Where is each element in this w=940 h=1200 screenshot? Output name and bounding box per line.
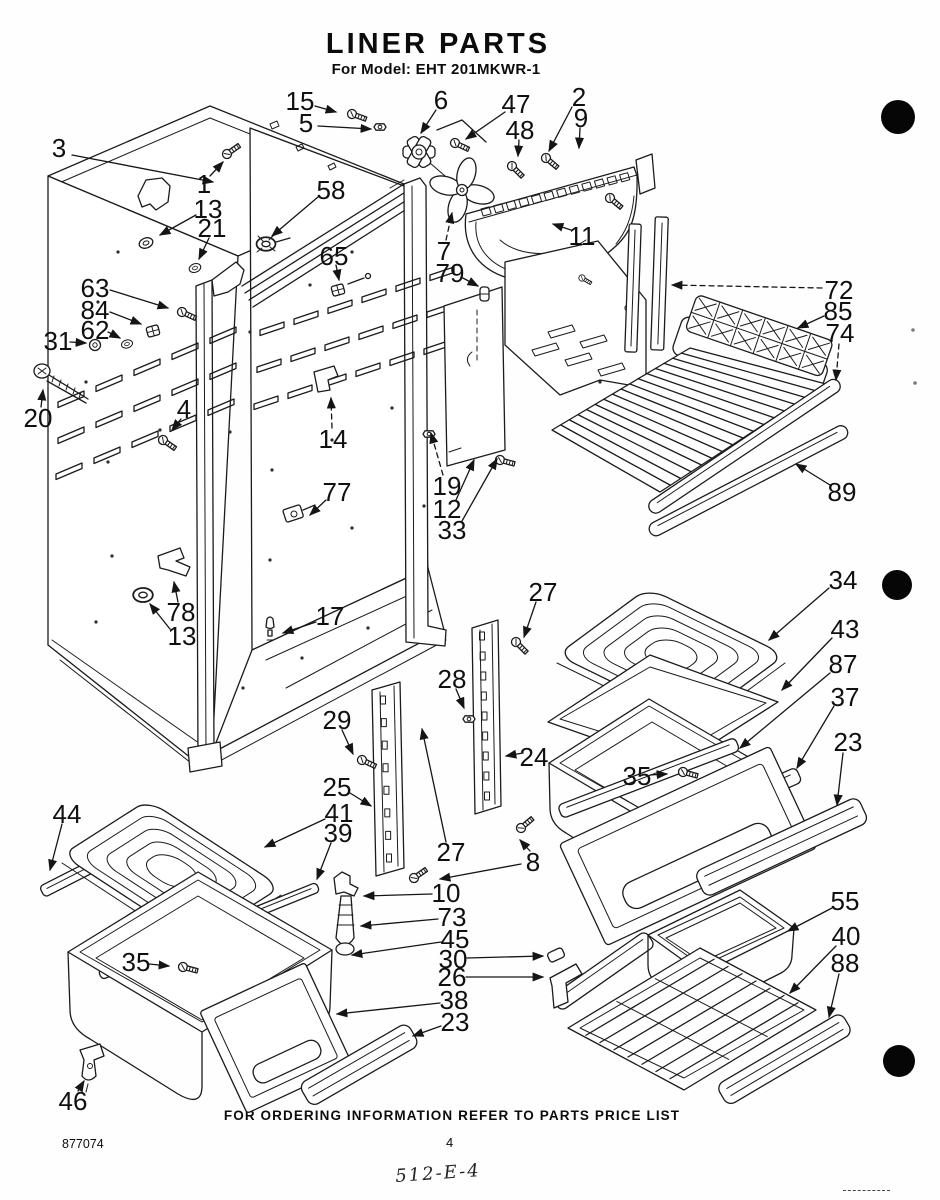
- clip-84-icon: [146, 325, 160, 338]
- registration-dot: [883, 1045, 915, 1077]
- callout-74: 74: [826, 318, 855, 348]
- screw-8-icon: [515, 815, 536, 834]
- callout-13: 13: [168, 621, 197, 651]
- screw-27b-icon: [408, 866, 429, 885]
- callout-79: 79: [436, 258, 465, 288]
- registration-dots: [881, 100, 917, 1077]
- callout-5: 5: [299, 108, 313, 138]
- callout-46: 46: [59, 1086, 88, 1116]
- grommet-13b-icon: [133, 588, 153, 602]
- speck: [911, 328, 915, 332]
- callout-27: 27: [437, 837, 466, 867]
- clip-79-icon: [480, 287, 489, 301]
- shelf-rail-left: [372, 682, 404, 876]
- callout-27: 27: [529, 577, 558, 607]
- callout-35: 35: [122, 947, 151, 977]
- callout-58: 58: [317, 175, 346, 205]
- callout-33: 33: [438, 515, 467, 545]
- exploded-parts-diagram: 3155647482911321586563846231204147778131…: [0, 0, 940, 1200]
- screw-27a-icon: [510, 636, 530, 656]
- callout-17: 17: [316, 601, 345, 631]
- registration-dot: [881, 100, 915, 134]
- callout-31: 31: [44, 326, 73, 356]
- callout-43: 43: [831, 614, 860, 644]
- leveling-leg: [334, 872, 358, 955]
- callout-6: 6: [434, 85, 448, 115]
- callout-24: 24: [520, 742, 549, 772]
- callout-11: 11: [569, 221, 596, 251]
- callout-8: 8: [526, 847, 540, 877]
- callout-37: 37: [831, 682, 860, 712]
- callout-28: 28: [438, 664, 467, 694]
- callout-55: 55: [831, 886, 860, 916]
- callout-48: 48: [506, 115, 535, 145]
- nut-5-icon: [374, 124, 386, 130]
- hinge-bracket-46: [80, 1044, 104, 1092]
- callout-62: 62: [81, 315, 110, 345]
- callout-14: 14: [319, 424, 348, 454]
- callout-29: 29: [323, 705, 352, 735]
- callout-44: 44: [53, 799, 82, 829]
- nut-19-icon: [423, 431, 435, 437]
- callout-35: 35: [623, 761, 652, 791]
- screw-2-icon: [540, 152, 561, 171]
- speck: [913, 381, 917, 385]
- screw-48-icon: [506, 160, 526, 180]
- callout-23: 23: [834, 727, 863, 757]
- callout-39: 39: [324, 818, 353, 848]
- callout-40: 40: [832, 921, 861, 951]
- registration-dot: [882, 570, 912, 600]
- callout-3: 3: [52, 133, 66, 163]
- screw-47-icon: [449, 137, 470, 153]
- screw-33-icon: [494, 454, 515, 468]
- callout-23: 23: [441, 1007, 470, 1037]
- end-cap-30: [547, 947, 566, 963]
- callout-65: 65: [320, 241, 349, 271]
- callout-89: 89: [828, 477, 857, 507]
- nut-28-icon: [463, 716, 475, 722]
- callout-4: 4: [177, 394, 191, 424]
- callout-87: 87: [829, 649, 858, 679]
- shelf-rail-right: [472, 620, 501, 814]
- callout-20: 20: [24, 403, 53, 433]
- screw-15-icon: [346, 108, 367, 123]
- callout-21: 21: [198, 213, 227, 243]
- service-manual-page: LINER PARTS For Model: EHT 201MKWR-1 FOR…: [0, 0, 940, 1200]
- callout-77: 77: [323, 477, 352, 507]
- callout-34: 34: [829, 565, 858, 595]
- callout-9: 9: [574, 103, 588, 133]
- callout-88: 88: [831, 948, 860, 978]
